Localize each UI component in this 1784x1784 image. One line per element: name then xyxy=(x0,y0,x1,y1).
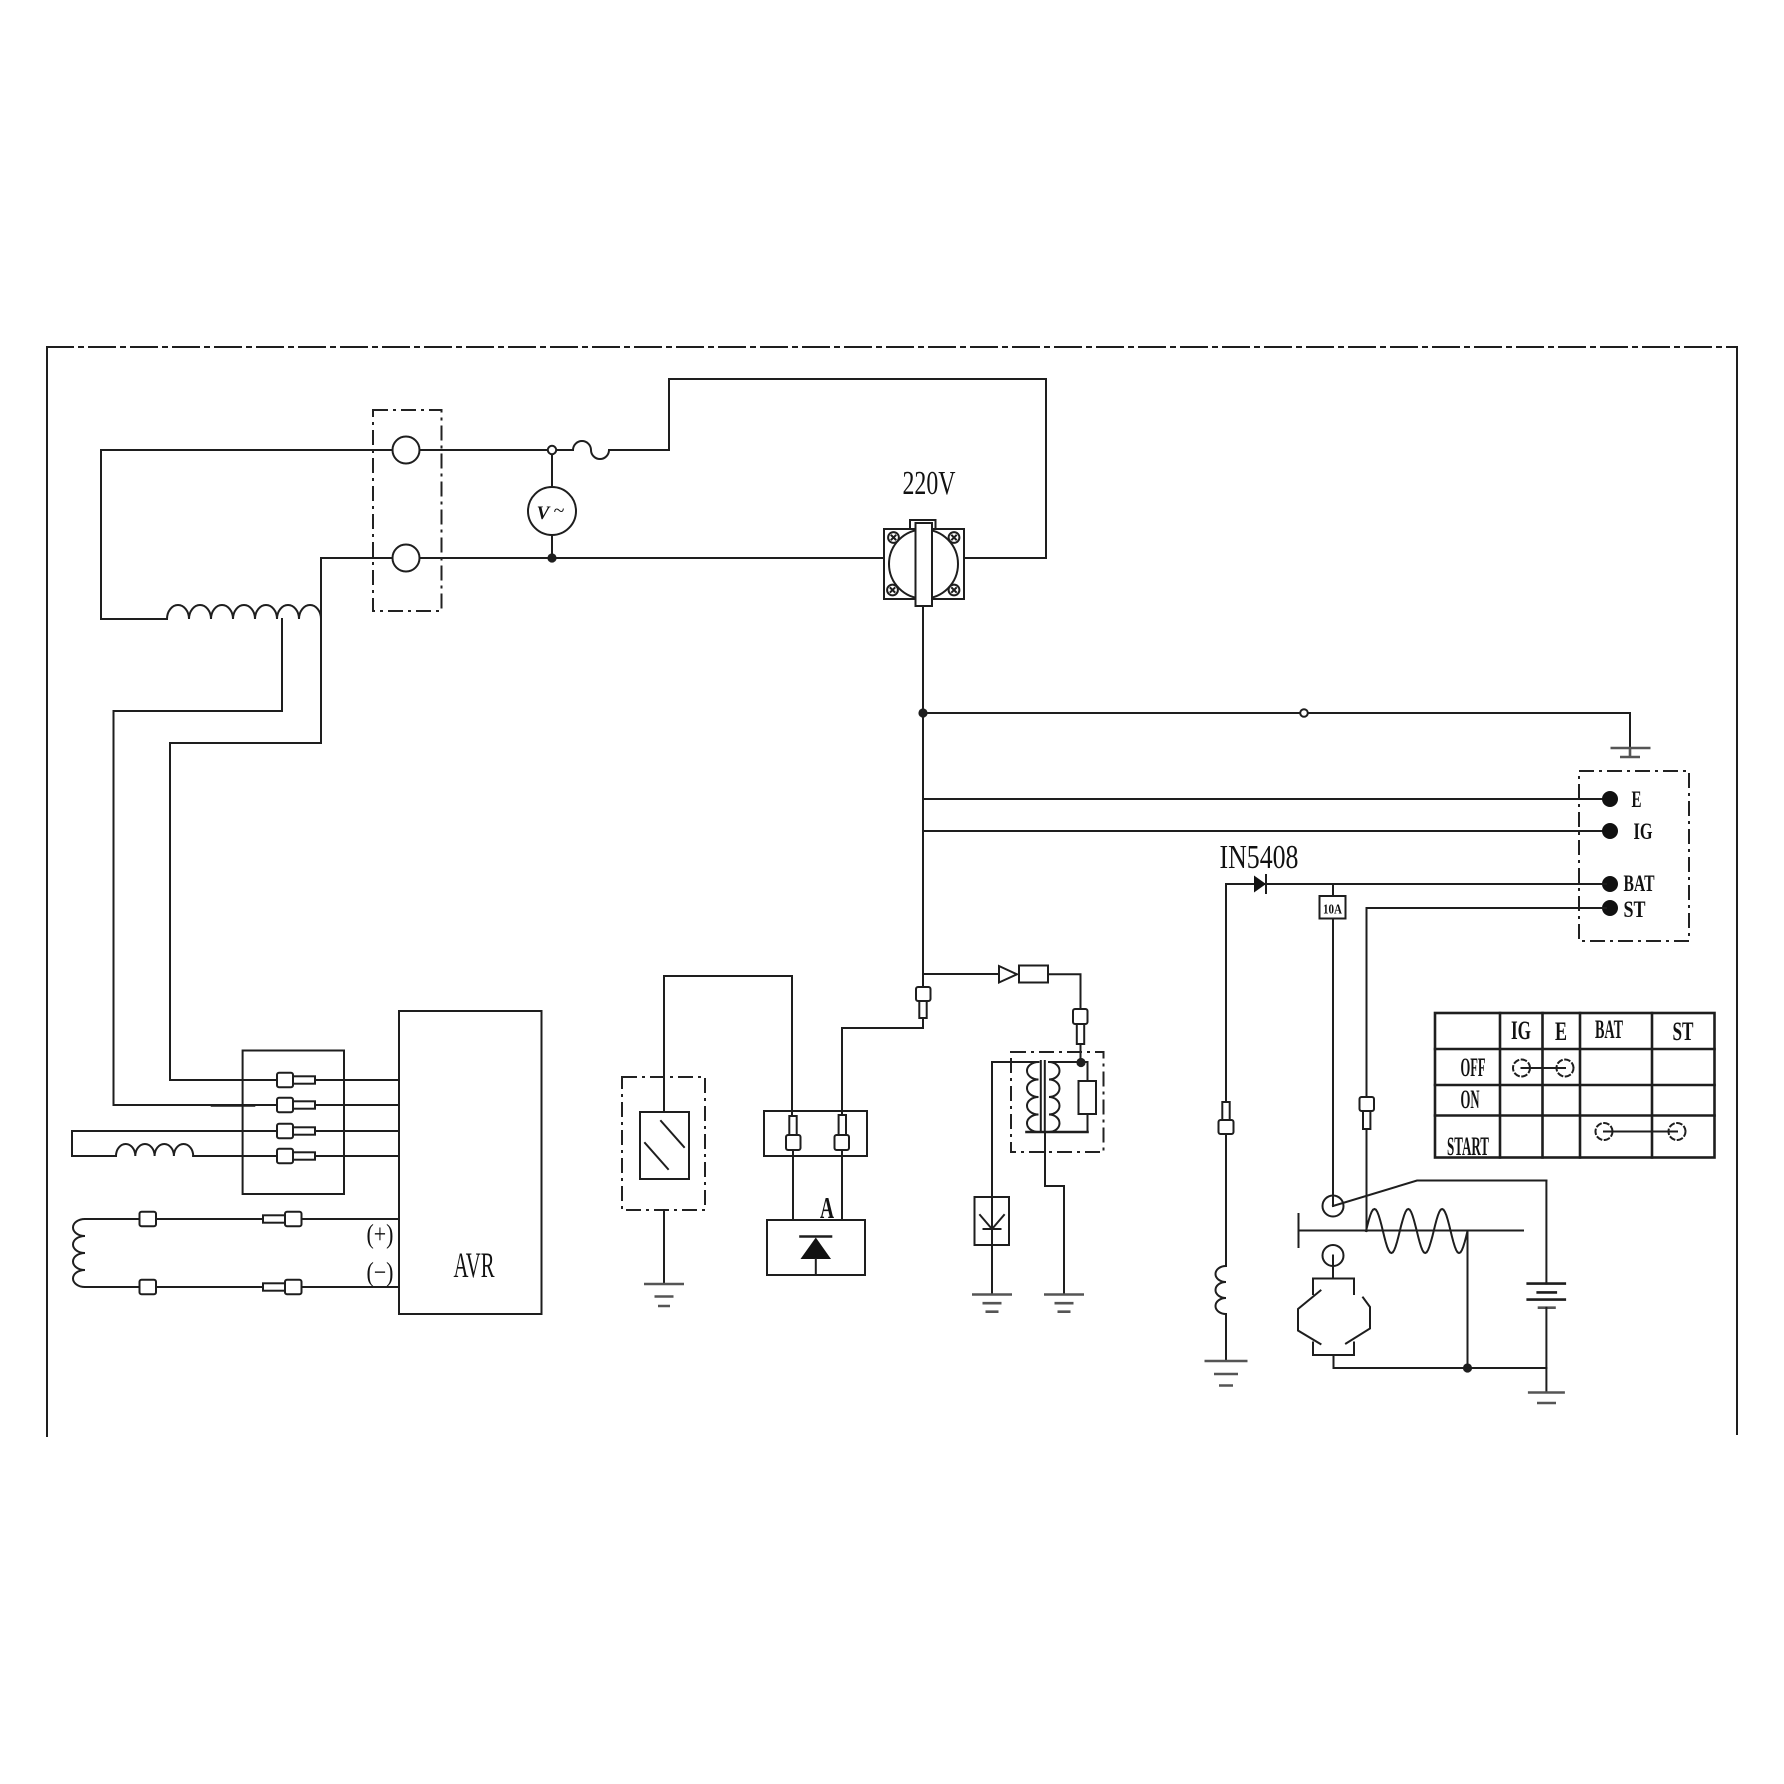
svg-text:IG: IG xyxy=(1511,1016,1531,1045)
svg-text:220V: 220V xyxy=(903,465,956,502)
svg-text:ST: ST xyxy=(1673,1017,1694,1046)
svg-text:E: E xyxy=(1632,787,1642,812)
svg-text:10A: 10A xyxy=(1323,903,1343,918)
svg-text:BAT: BAT xyxy=(1595,1015,1623,1044)
svg-text:(+): (+) xyxy=(367,1219,394,1249)
svg-text:E: E xyxy=(1555,1017,1567,1046)
svg-text:BAT: BAT xyxy=(1624,871,1655,896)
svg-text:(−): (−) xyxy=(367,1257,394,1287)
svg-text:OFF: OFF xyxy=(1461,1053,1486,1082)
svg-text:~: ~ xyxy=(554,500,565,522)
svg-text:AVR: AVR xyxy=(454,1245,495,1285)
svg-text:IN5408: IN5408 xyxy=(1220,839,1299,876)
svg-text:IG: IG xyxy=(1634,819,1653,844)
svg-text:V: V xyxy=(537,503,551,524)
svg-text:ON: ON xyxy=(1461,1085,1480,1114)
svg-text:START: START xyxy=(1447,1132,1489,1161)
svg-text:ST: ST xyxy=(1624,897,1646,922)
